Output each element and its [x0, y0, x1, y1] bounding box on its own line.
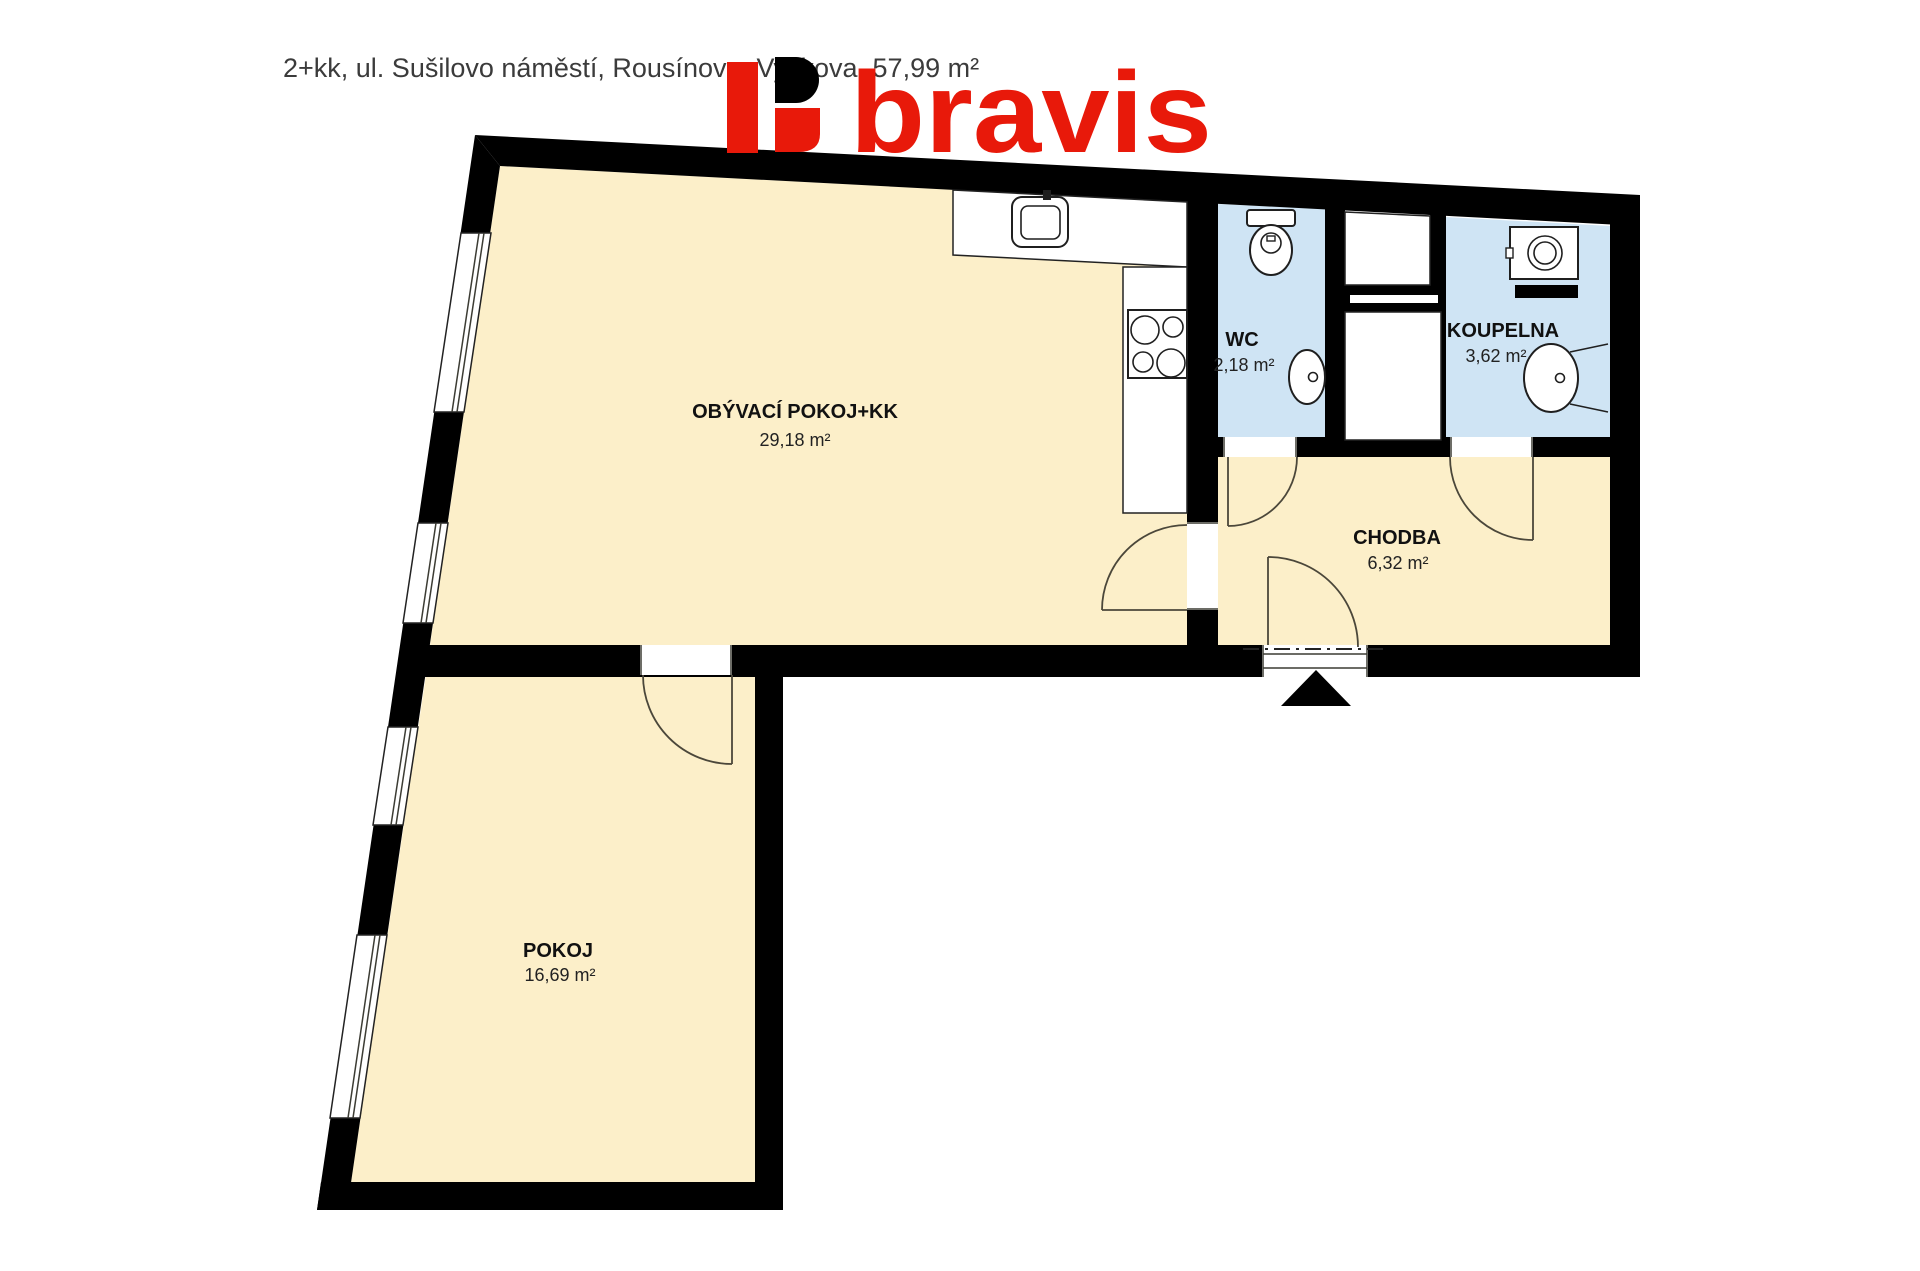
logo-wordmark: bravis: [850, 49, 1212, 177]
logo-b-bottom-bowl-icon: [775, 108, 820, 152]
opening-koupelna: [1450, 437, 1533, 457]
label-pokoj: POKOJ: [523, 940, 593, 962]
logo-bar-icon: [727, 62, 758, 153]
wall-bottom-main: [396, 645, 1640, 677]
label-living-room: OBÝVACÍ POKOJ+KK: [692, 399, 898, 423]
wall-wc-shaft: [1325, 200, 1345, 457]
area-pokoj: 16,69 m²: [524, 965, 595, 985]
opening-pokoj: [640, 645, 732, 675]
label-koupelna: KOUPELNA: [1447, 320, 1559, 342]
floor-plan-page: OBÝVACÍ POKOJ+KK 29,18 m² WC 2,18 m² KOU…: [0, 0, 1920, 1271]
area-koupelna: 3,62 m²: [1465, 346, 1526, 366]
shaft-lower-box: [1345, 312, 1441, 440]
kitchen-counter-top: [953, 190, 1187, 267]
area-living-room: 29,18 m²: [759, 430, 830, 450]
wall-right: [1610, 195, 1640, 677]
installation-shaft: [1345, 212, 1441, 440]
kitchen-tap-icon: [1043, 190, 1051, 200]
washing-machine-detail: [1506, 248, 1513, 258]
logo-b-top-bowl-icon: [775, 57, 819, 103]
shaft-crossband-slit: [1350, 295, 1438, 303]
toilet-detail: [1267, 236, 1275, 241]
area-wc: 2,18 m²: [1213, 355, 1274, 375]
opening-living-chodba: [1187, 522, 1218, 610]
label-wc: WC: [1225, 329, 1258, 351]
washing-machine-icon: [1510, 227, 1578, 279]
wc-washbasin-icon: [1289, 350, 1325, 404]
kitchen-counter-side: [1123, 267, 1187, 513]
shaft-upper-box: [1345, 212, 1430, 285]
toilet-tank: [1247, 210, 1295, 226]
koupelna-washbasin-icon: [1524, 344, 1578, 412]
wall-pokoj-right: [755, 645, 783, 1210]
opening-wc: [1223, 437, 1297, 457]
floor-plan-drawing: OBÝVACÍ POKOJ+KK 29,18 m² WC 2,18 m² KOU…: [0, 0, 1920, 1271]
label-chodba: CHODBA: [1353, 527, 1441, 549]
koupelna-shelf: [1515, 285, 1578, 298]
area-chodba: 6,32 m²: [1367, 553, 1428, 573]
wall-pokoj-bottom: [317, 1182, 783, 1210]
